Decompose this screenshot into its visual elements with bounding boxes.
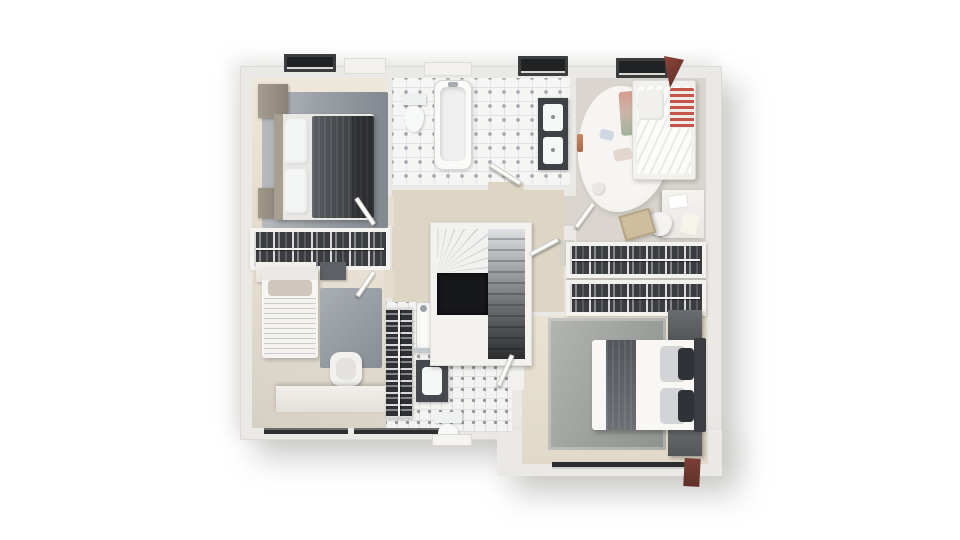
shower-head [420,305,427,312]
floor-plan [0,0,960,540]
sink-drain-2 [551,148,555,152]
window-bay-bottom [432,434,472,446]
toilet-bottom-tank [434,412,462,423]
double-bed-dark-headboard [274,114,283,220]
desk-long [276,386,386,412]
wardrobe [258,84,288,118]
dormer-window-3 [616,58,668,78]
stair-void [437,273,488,315]
single-bed-headboard [262,268,318,280]
doorway-bedroom-bottomleft [384,270,394,298]
window-bottom-1 [264,428,348,434]
double-bed-dark-pillow-1 [285,119,309,165]
closet-left-clothes [254,232,386,266]
master-window [552,462,692,469]
sink-drain-1 [551,115,555,119]
master-nightstand-1 [668,310,702,340]
bathtub-basin [440,87,466,161]
single-bed-pillow [268,280,312,296]
dormer-window-1 [284,54,336,72]
master-bed-throw [606,340,636,430]
bathtub-faucet [448,82,458,87]
single-bed-blanket [264,298,316,356]
stair-winders [437,229,488,273]
kids-desk-paper-1 [667,193,689,210]
roof-bump-1 [344,58,386,74]
linen-shelf-towels [386,308,412,418]
armchair-seat [336,358,356,380]
dresser-gray [320,262,346,280]
towel-rail-copper [577,134,583,152]
stair-flight [488,229,525,359]
roof-bump-2 [424,62,472,76]
clothes-rack-2 [570,284,702,312]
master-headboard [694,338,706,432]
kids-ball [592,182,604,194]
double-bed-dark-pillow-2 [285,169,309,215]
dormer-window-2 [518,56,568,76]
master-pillow-dark-1 [678,348,694,380]
exterior-door-brown [683,458,700,487]
clothes-rack-1 [570,246,702,274]
master-pillow-dark-2 [678,390,694,422]
kids-pillow [638,90,664,120]
vanity-small-basin [422,367,442,395]
kids-red-blanket [670,88,694,128]
toilet-top-tank [402,94,426,105]
